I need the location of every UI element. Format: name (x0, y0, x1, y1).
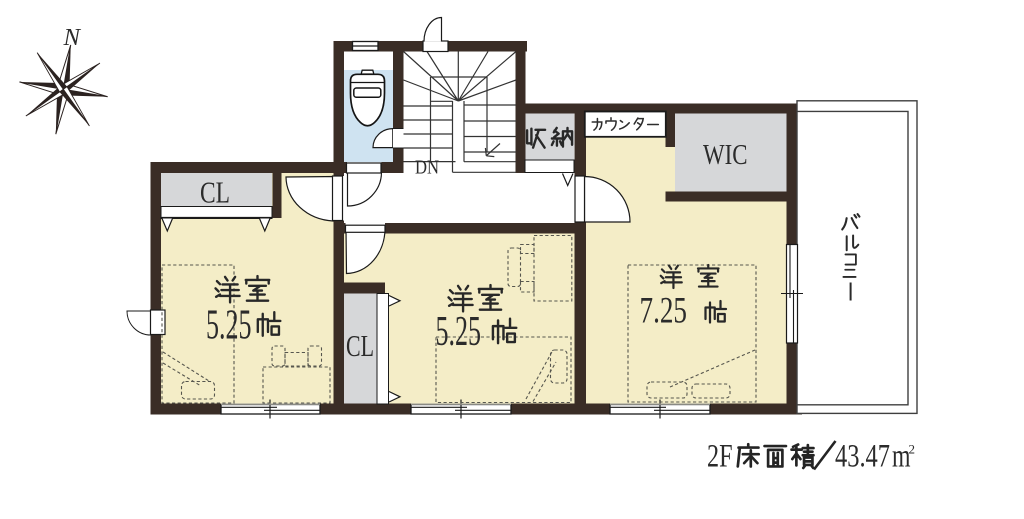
svg-text:CL: CL (200, 175, 230, 210)
svg-text:43.47: 43.47 (835, 439, 890, 475)
svg-text:7.25: 7.25 (640, 290, 688, 331)
svg-text:DN: DN (415, 157, 439, 178)
svg-text:WIC: WIC (703, 140, 748, 171)
svg-text:2F: 2F (707, 439, 733, 475)
svg-text:CL: CL (346, 328, 374, 363)
svg-text:2: 2 (909, 442, 916, 457)
svg-text:N: N (62, 25, 82, 51)
svg-text:5.25: 5.25 (206, 303, 252, 349)
svg-text:5.25: 5.25 (436, 309, 482, 355)
